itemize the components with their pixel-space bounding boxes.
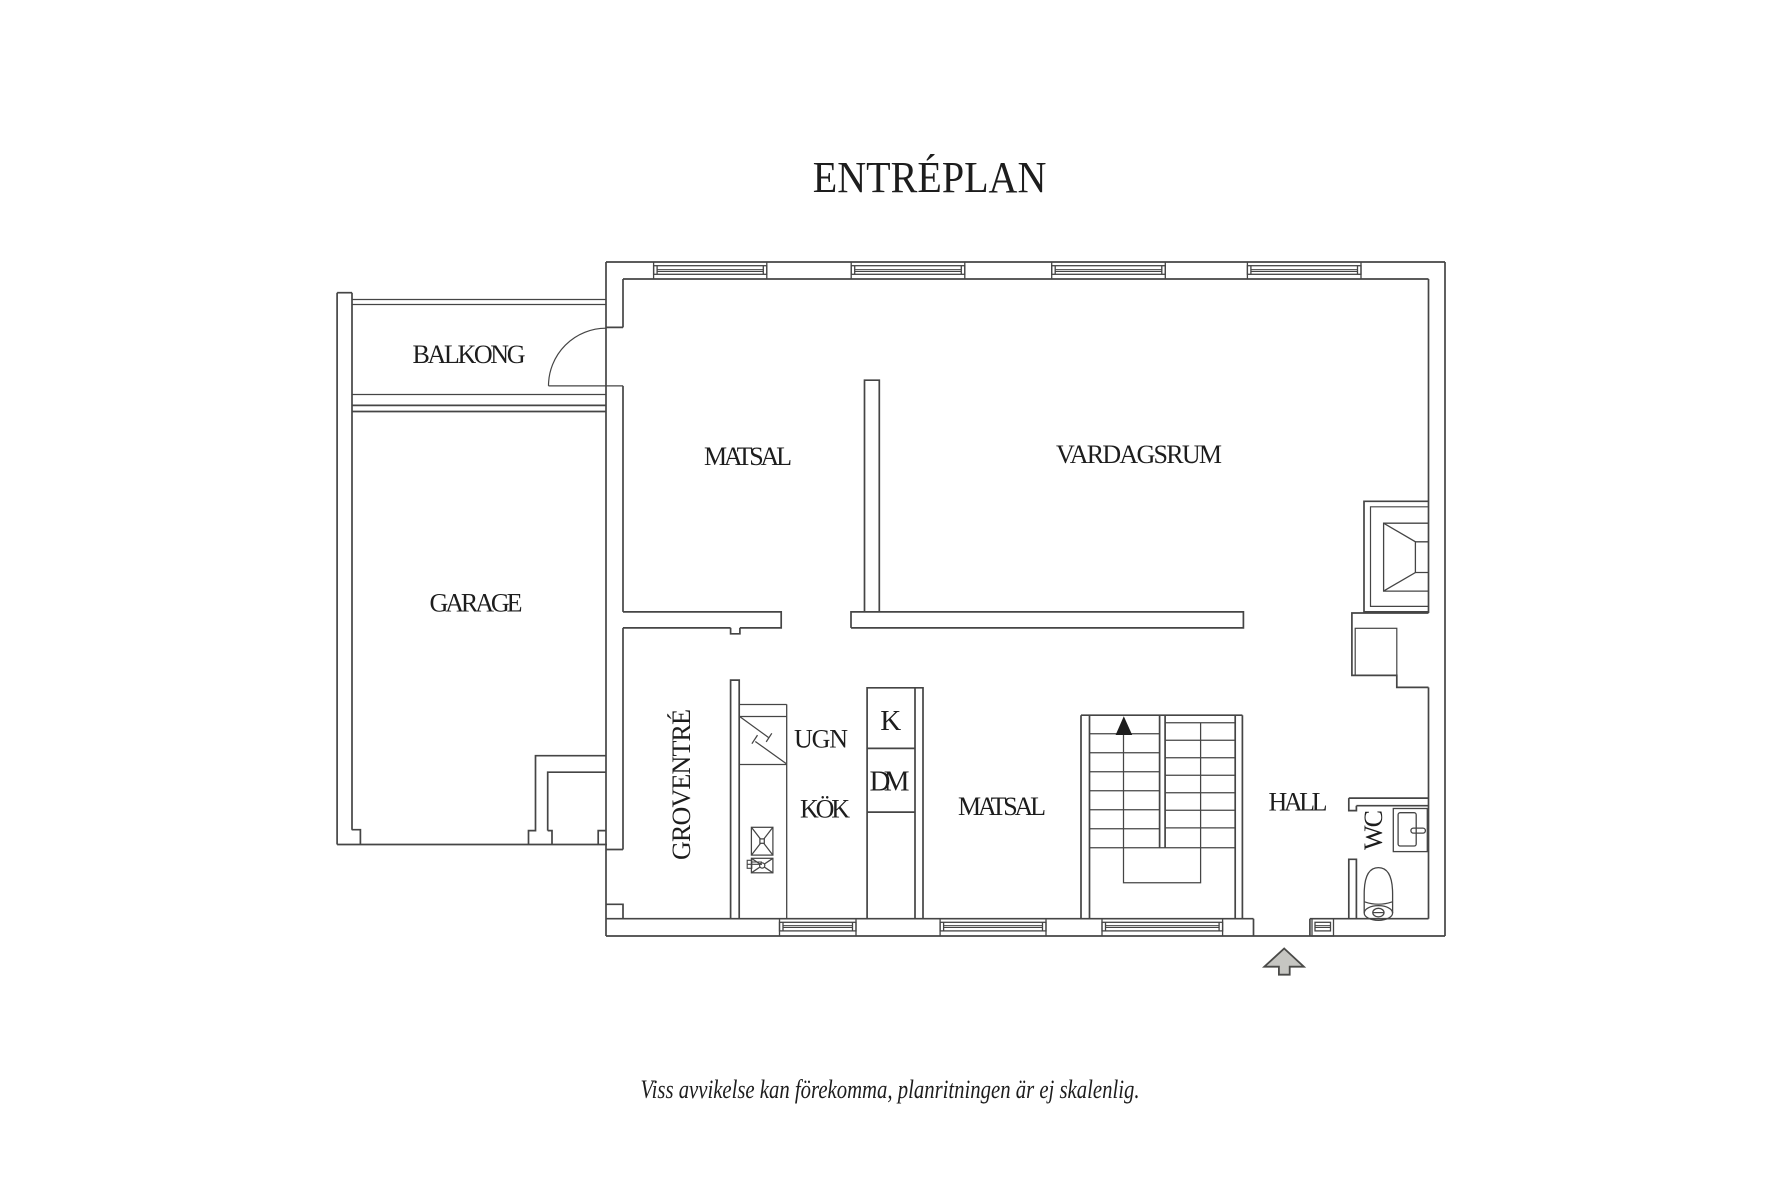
svg-text:K: K bbox=[880, 705, 901, 737]
svg-text:GROVENTRÉ: GROVENTRÉ bbox=[667, 709, 696, 860]
svg-text:MATSAL: MATSAL bbox=[958, 792, 1046, 821]
svg-text:VARDAGSRUM: VARDAGSRUM bbox=[1056, 440, 1222, 469]
svg-text:KÖK: KÖK bbox=[800, 795, 850, 824]
svg-text:WC: WC bbox=[1359, 810, 1388, 850]
svg-text:MATSAL: MATSAL bbox=[704, 442, 792, 471]
svg-text:BALKONG: BALKONG bbox=[413, 340, 526, 369]
svg-text:ENTRÉPLAN: ENTRÉPLAN bbox=[813, 153, 1047, 202]
svg-text:UGN: UGN bbox=[794, 725, 848, 754]
svg-text:DM: DM bbox=[870, 766, 910, 798]
svg-text:HALL: HALL bbox=[1269, 788, 1328, 817]
svg-text:GARAGE: GARAGE bbox=[430, 589, 523, 618]
svg-text:Viss avvikelse kan förekomma,: Viss avvikelse kan förekomma, planritnin… bbox=[641, 1075, 1140, 1104]
